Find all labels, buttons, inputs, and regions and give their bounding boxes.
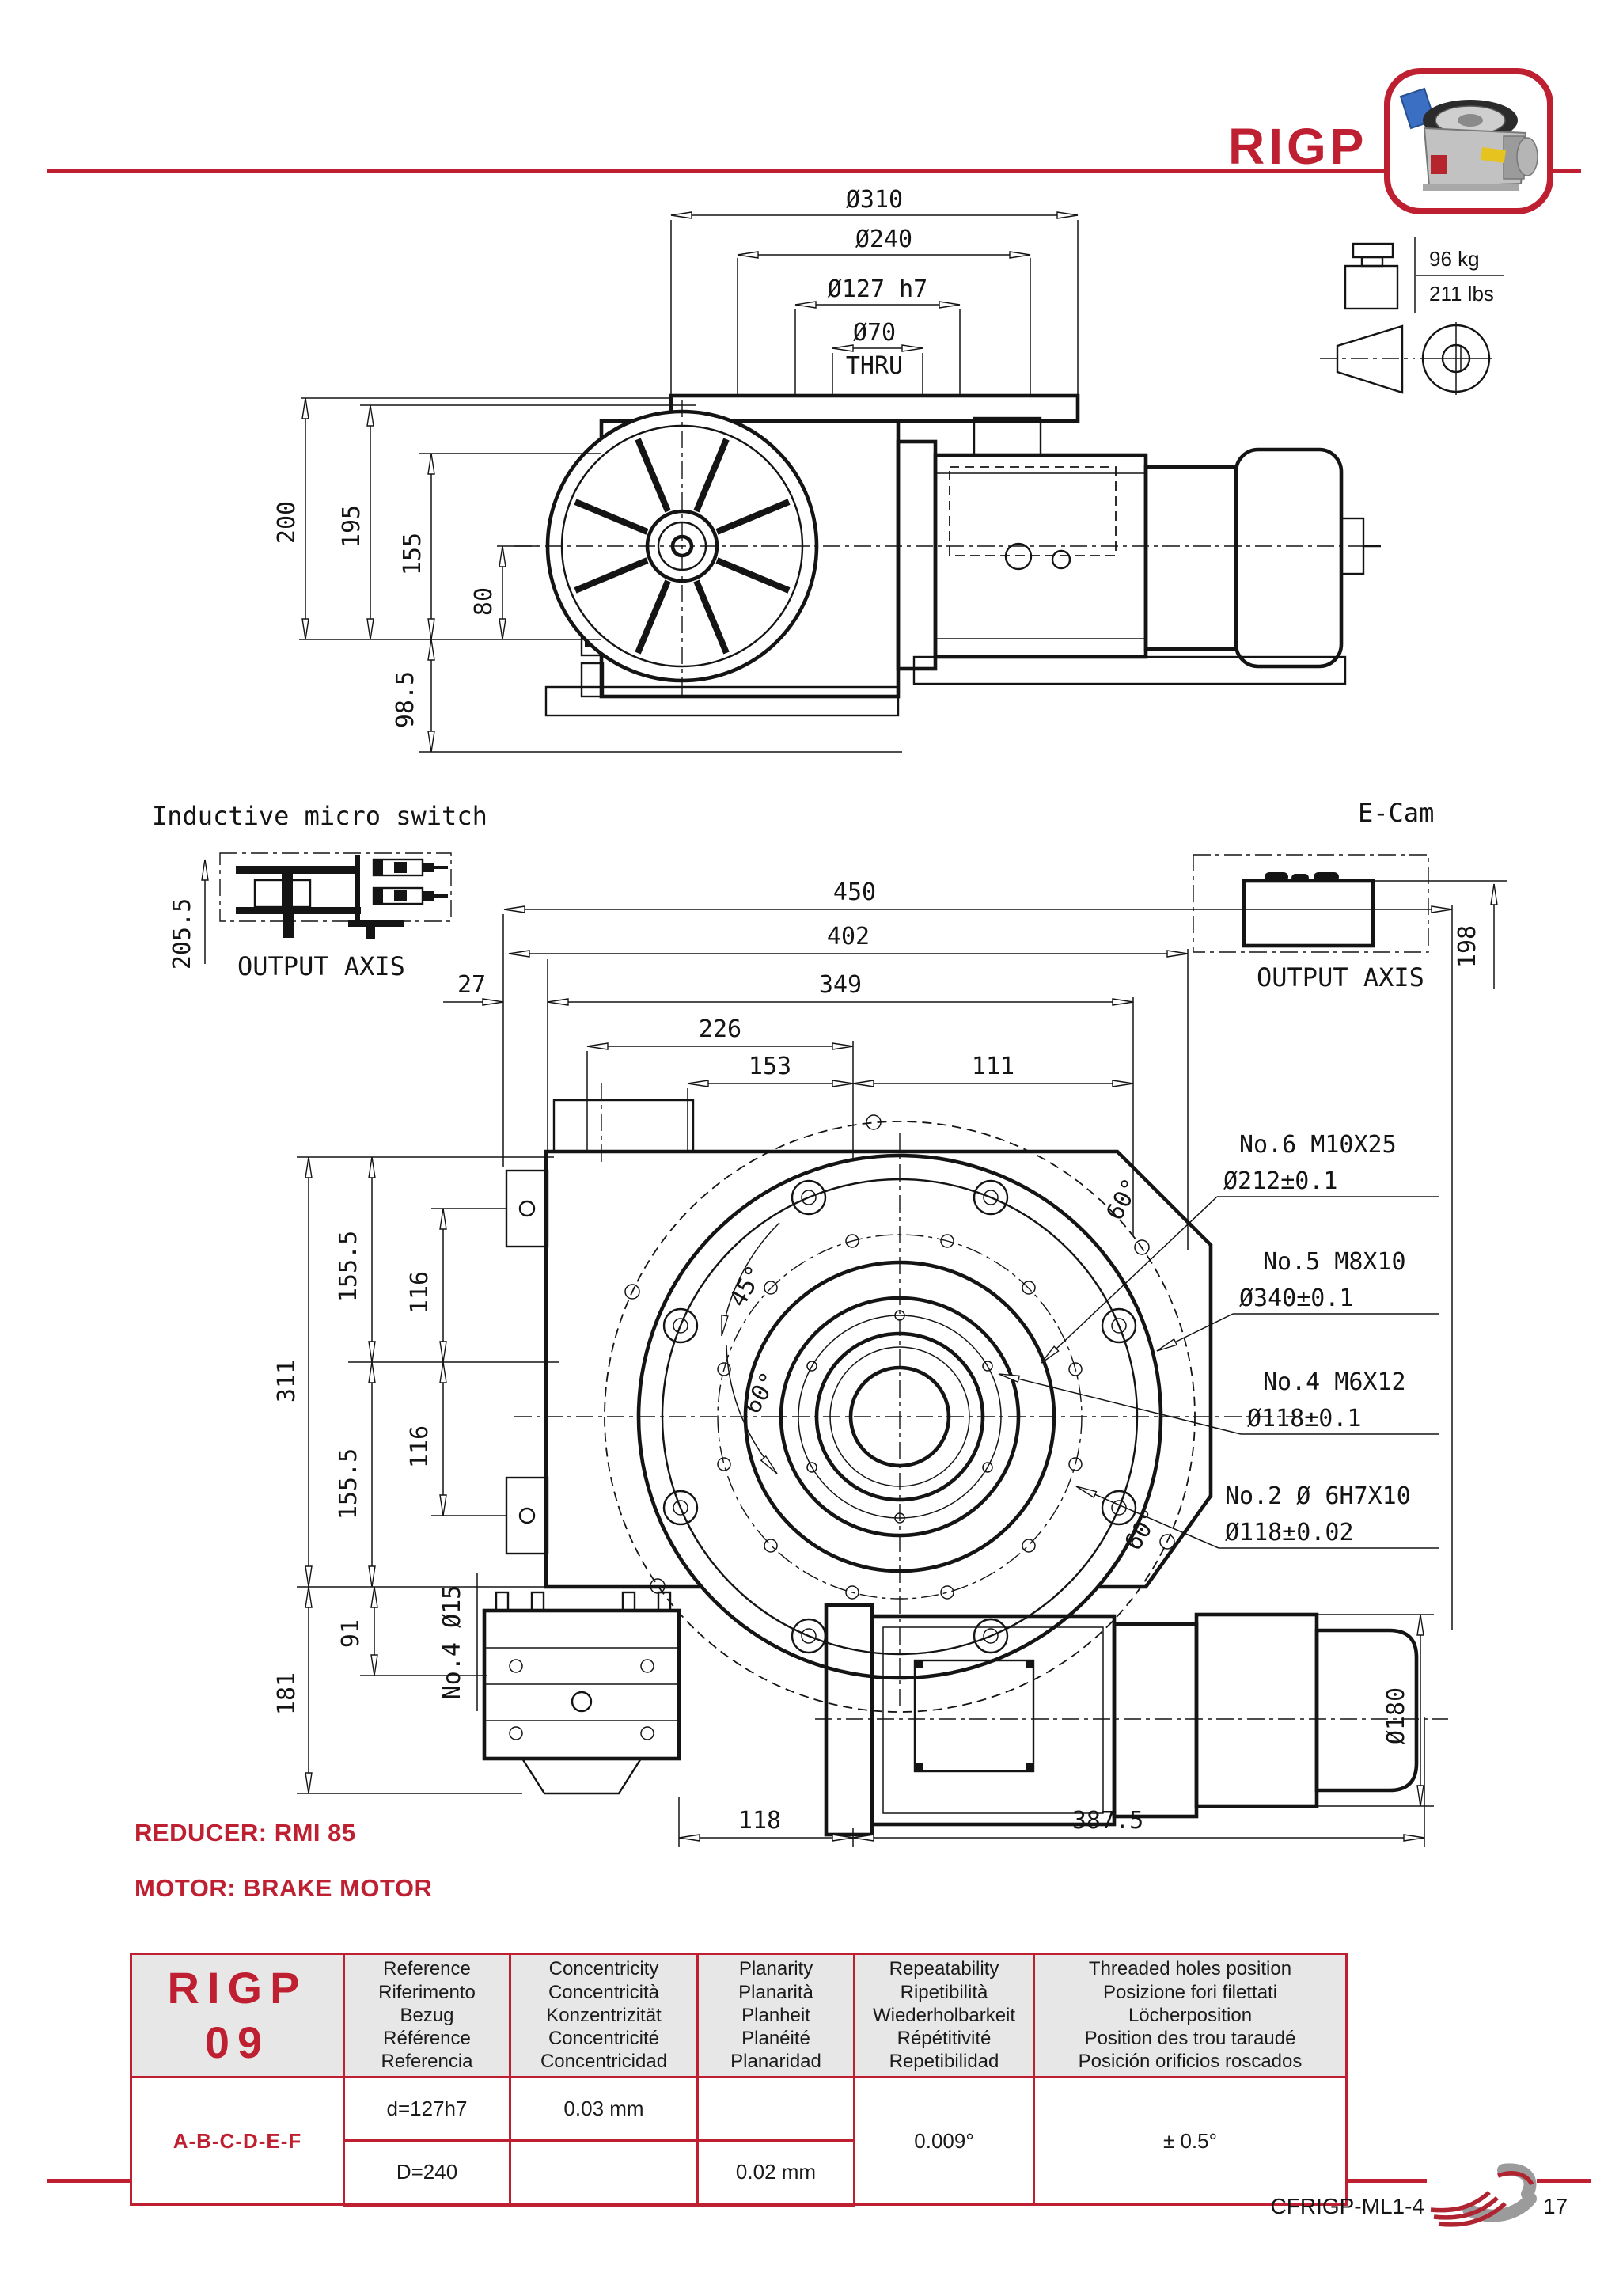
cell-planarity: 0.02 mm bbox=[698, 2141, 855, 2205]
dim-181: 181 bbox=[273, 1672, 301, 1715]
dim-155: 155 bbox=[399, 533, 427, 575]
dim-200: 200 bbox=[273, 501, 301, 544]
header-threaded-holes: Threaded holes positionPosizione fori fi… bbox=[1034, 1954, 1347, 2078]
micro-switch-output-axis-label: OUTPUT AXIS bbox=[237, 951, 405, 981]
dim-118: 118 bbox=[738, 1807, 781, 1835]
svg-text:No.6 M10X25: No.6 M10X25 bbox=[1239, 1131, 1397, 1159]
footer-page-number: 17 bbox=[1543, 2194, 1568, 2219]
dim-d70: Ø70 bbox=[853, 319, 896, 347]
reducer-note: REDUCER: RMI 85 bbox=[135, 1819, 356, 1846]
bottom-bracket bbox=[484, 1592, 679, 1793]
datasheet-page: 96 kg 211 lbs bbox=[0, 0, 1623, 2296]
dim-195: 195 bbox=[338, 505, 366, 548]
dim-205-5: 205.5 bbox=[169, 898, 196, 970]
dim-d310: Ø310 bbox=[846, 186, 903, 214]
cell-planarity-empty bbox=[698, 2078, 855, 2141]
callout-no5: No.5 M8X10 Ø340±0.1 bbox=[1157, 1248, 1439, 1351]
weight-icon bbox=[1345, 244, 1397, 309]
motor-side bbox=[898, 418, 1381, 684]
footer-doc-code: CFRIGP-ML1-4 bbox=[1132, 2194, 1424, 2219]
model-cell: RIGP 09 bbox=[131, 1954, 344, 2078]
dim-198: 198 bbox=[1454, 925, 1481, 968]
svg-text:Ø118±0.02: Ø118±0.02 bbox=[1225, 1519, 1354, 1546]
sensor-cables bbox=[374, 860, 448, 904]
dim-155-5-lower: 155.5 bbox=[335, 1448, 362, 1520]
cell-concentricity-empty bbox=[510, 2141, 698, 2205]
dim-450: 450 bbox=[833, 879, 876, 906]
angle-60-top-right: 60° bbox=[1101, 1174, 1145, 1224]
cell-reference-D: D=240 bbox=[344, 2141, 510, 2205]
cell-threaded: ± 0.5° bbox=[1034, 2078, 1347, 2205]
svg-text:No.5 M8X10: No.5 M8X10 bbox=[1263, 1248, 1406, 1276]
dim-311: 311 bbox=[273, 1360, 301, 1402]
product-photo-badge bbox=[1387, 71, 1550, 211]
cell-reference-d: d=127h7 bbox=[344, 2078, 510, 2141]
svg-text:Ø118±0.1: Ø118±0.1 bbox=[1247, 1405, 1362, 1433]
ecam-output-axis-label: OUTPUT AXIS bbox=[1257, 962, 1424, 992]
dim-d240: Ø240 bbox=[855, 226, 912, 253]
label-no4-d15: No.4 Ø15 bbox=[438, 1585, 466, 1700]
header-planarity: PlanarityPlanaritàPlanheitPlanéitéPlanar… bbox=[698, 1954, 855, 2078]
svg-text:No.4 M6X12: No.4 M6X12 bbox=[1263, 1368, 1406, 1396]
projection-symbol-icon bbox=[1320, 322, 1492, 395]
svg-text:Ø212±0.1: Ø212±0.1 bbox=[1223, 1167, 1338, 1195]
ecam-detail: E-Cam 198 OUTPUT AXIS bbox=[1193, 798, 1507, 992]
cell-concentricity: 0.03 mm bbox=[510, 2078, 698, 2141]
dim-27: 27 bbox=[457, 971, 486, 999]
cell-repeatability: 0.009° bbox=[855, 2078, 1034, 2205]
brand-logo bbox=[1431, 2169, 1532, 2225]
dim-226: 226 bbox=[699, 1015, 741, 1043]
dim-153: 153 bbox=[749, 1053, 791, 1080]
dim-116-upper: 116 bbox=[406, 1271, 434, 1314]
motor-note: MOTOR: BRAKE MOTOR bbox=[135, 1874, 432, 1902]
dim-111: 111 bbox=[972, 1053, 1014, 1080]
svg-text:No.2 Ø 6H7X10: No.2 Ø 6H7X10 bbox=[1225, 1482, 1411, 1510]
variant-cell: A-B-C-D-E-F bbox=[131, 2078, 344, 2205]
dim-387-5: 387.5 bbox=[1072, 1807, 1143, 1835]
dim-402: 402 bbox=[827, 923, 870, 951]
header-reference: ReferenceRiferimentoBezugRéférenceRefere… bbox=[344, 1954, 510, 2078]
dim-80: 80 bbox=[470, 587, 498, 616]
dim-thru: THRU bbox=[846, 352, 903, 380]
side-view-drawing bbox=[514, 396, 1381, 715]
dim-155-5-upper: 155.5 bbox=[335, 1231, 362, 1302]
dim-91: 91 bbox=[337, 1619, 365, 1648]
ecam-title: E-Cam bbox=[1358, 798, 1434, 828]
dim-d180: Ø180 bbox=[1382, 1687, 1410, 1744]
weight-block: 96 kg 211 lbs bbox=[1320, 237, 1504, 395]
drawing-canvas: 96 kg 211 lbs bbox=[0, 0, 1623, 2296]
weight-kg: 96 kg bbox=[1429, 247, 1480, 271]
front-view-drawing bbox=[484, 1083, 1448, 1835]
micro-switch-detail: Inductive micro switch 205.5 OUTPUT AXIS bbox=[152, 801, 487, 981]
header-repeatability: RepeatabilityRipetibilitàWiederholbarkei… bbox=[855, 1954, 1034, 2078]
page-title: RIGP bbox=[1228, 117, 1367, 176]
weight-lbs: 211 lbs bbox=[1429, 282, 1494, 306]
spec-table: RIGP 09 ReferenceRiferimentoBezugRéféren… bbox=[130, 1953, 1348, 2207]
header-concentricity: ConcentricityConcentricitàKonzentrizität… bbox=[510, 1954, 698, 2078]
dim-d127h7: Ø127 h7 bbox=[828, 275, 927, 303]
svg-text:Ø340±0.1: Ø340±0.1 bbox=[1239, 1285, 1354, 1312]
dim-98-5: 98.5 bbox=[392, 671, 419, 728]
micro-switch-title: Inductive micro switch bbox=[152, 801, 487, 831]
dim-116-lower: 116 bbox=[406, 1425, 434, 1468]
dim-349: 349 bbox=[819, 971, 862, 999]
